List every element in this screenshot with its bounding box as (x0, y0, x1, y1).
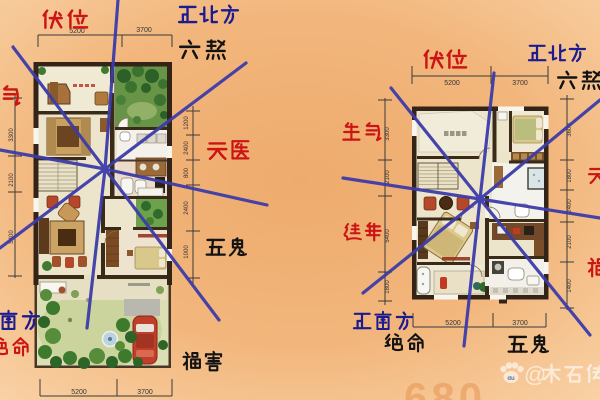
svg-text:3300: 3300 (385, 127, 391, 141)
svg-text:@: @ (524, 362, 546, 387)
svg-text:1200: 1200 (184, 116, 190, 130)
svg-text:800: 800 (184, 167, 190, 178)
svg-text:3700: 3700 (512, 80, 528, 87)
svg-text:3700: 3700 (512, 320, 528, 327)
svg-text:5200: 5200 (69, 28, 85, 35)
svg-text:1800: 1800 (385, 280, 391, 294)
svg-text:1800: 1800 (567, 169, 573, 183)
svg-text:5400: 5400 (385, 229, 391, 243)
svg-text:5200: 5200 (71, 389, 87, 396)
svg-text:3300: 3300 (9, 128, 15, 142)
svg-text:2100: 2100 (567, 235, 573, 249)
svg-text:1400: 1400 (567, 279, 573, 293)
svg-text:1000: 1000 (184, 245, 190, 259)
svg-text:5200: 5200 (444, 80, 460, 87)
svg-text:du: du (507, 376, 515, 382)
svg-text:2400: 2400 (184, 201, 190, 215)
svg-text:3700: 3700 (136, 27, 152, 34)
svg-text:5200: 5200 (445, 320, 461, 327)
svg-text:3700: 3700 (137, 389, 153, 396)
svg-text:2100: 2100 (385, 170, 391, 184)
svg-text:2100: 2100 (9, 173, 15, 187)
svg-text:2400: 2400 (567, 199, 573, 213)
svg-text:2400: 2400 (184, 141, 190, 155)
svg-text:680: 680 (404, 374, 486, 400)
